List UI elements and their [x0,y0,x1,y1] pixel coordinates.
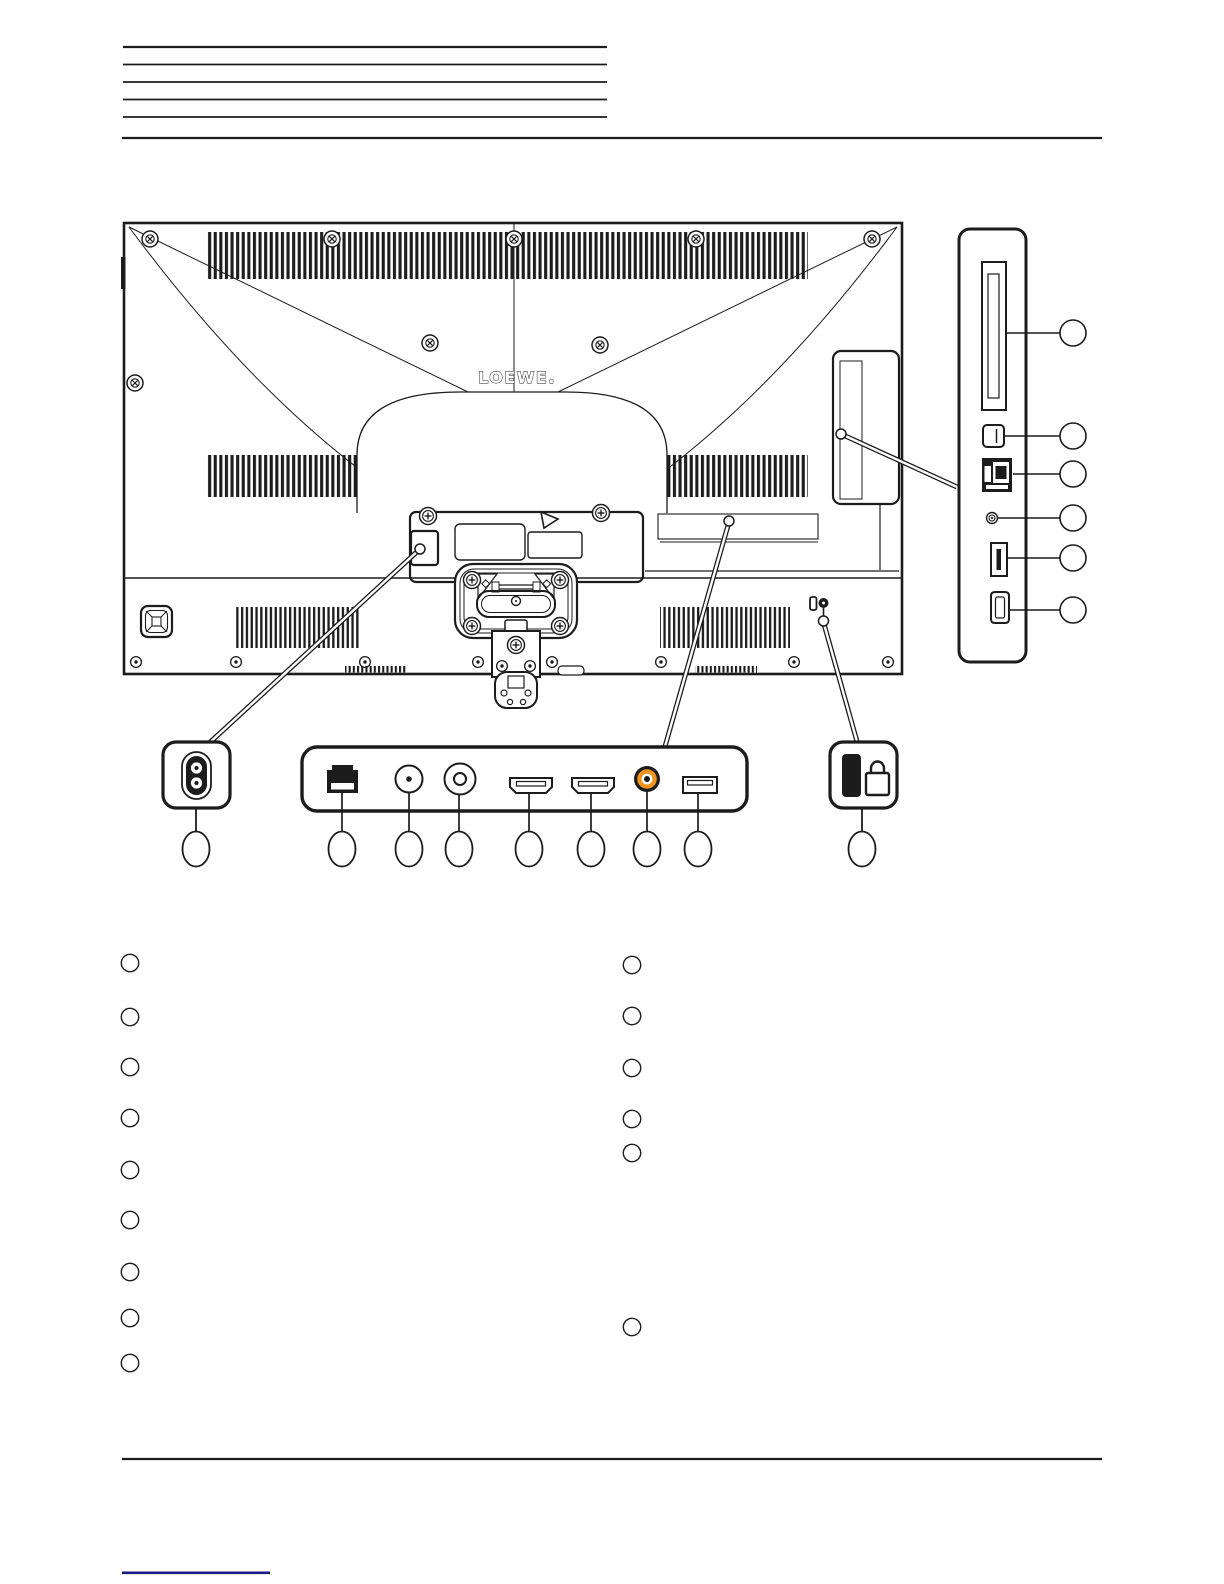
serrated-strip-right [695,666,757,673]
legend-marker [121,1263,138,1280]
rear-terminal-strip-detail [302,747,747,867]
serrated-strip-left [345,666,407,673]
callout-marker [1060,320,1086,346]
legend-marker [623,956,640,973]
hdmi-port-icon [510,778,552,793]
legend-marker [623,1007,640,1024]
legend-marker [121,954,138,971]
hdmi-port-icon [572,778,614,793]
device-label [658,514,818,542]
callout-marker [329,832,356,867]
vent-grille-bottom-right [660,607,790,648]
manual-page: LOEWE. [0,0,1224,1584]
manual-page-diagram: LOEWE. [0,0,1224,1584]
footer-accent-line [122,1572,270,1575]
callout-marker [1060,461,1086,487]
header-placeholder-lines [123,47,607,117]
callout-marker [516,832,543,867]
callout-marker [183,832,210,867]
legend-marker [121,1211,138,1228]
lan-port-icon [982,458,1012,492]
table-stand-bracket [492,631,540,677]
legend-marker [121,1309,138,1326]
power-inlet-detail [163,742,230,867]
callout-marker [1060,545,1086,571]
callout-marker [578,832,605,867]
legend-marker [121,1354,138,1371]
callout-marker [685,832,712,867]
callout-marker [634,832,661,867]
legend-marker [121,1109,138,1126]
callout-marker [1060,423,1086,449]
audio-rca-jack-icon [634,766,660,792]
legend-marker [623,1059,640,1076]
callout-marker [396,832,423,867]
kensington-slot [842,754,861,797]
cable-clamp-icon [141,606,172,637]
stand-neck [495,672,537,708]
usb-port-icon [683,777,717,793]
rating-label-2 [528,532,582,558]
hdmi-port-icon [991,592,1009,623]
callout-marker [1060,505,1086,531]
tv-back-view: LOEWE. [121,223,902,708]
sat-antenna-jack-icon [445,764,476,795]
callout-marker [849,832,876,867]
brand-logo: LOEWE. [478,368,556,387]
legend-marker [623,1110,640,1127]
vent-grille-bottom-left [236,607,360,648]
rating-label [455,524,525,560]
bottom-notch [558,666,584,675]
legend-marker [121,1008,138,1025]
legend-marker [623,1144,640,1161]
side-panel-detail [959,229,1086,662]
rf-antenna-jack-icon [396,766,423,793]
legend-marker [121,1058,138,1075]
legend-marker [623,1318,640,1335]
kensington-lock-detail [830,742,897,867]
legend-left-column [121,954,138,1371]
side-callout-markers [1060,320,1086,623]
legend-right-column [623,956,640,1335]
callout-marker [446,832,473,867]
strip-callout-markers [329,832,712,867]
center-panel [357,392,667,513]
legend-marker [121,1161,138,1178]
left-edge-mark [121,257,126,289]
callout-marker [1060,597,1086,623]
vesa-mount [455,564,577,638]
usb-port-icon [991,543,1007,576]
